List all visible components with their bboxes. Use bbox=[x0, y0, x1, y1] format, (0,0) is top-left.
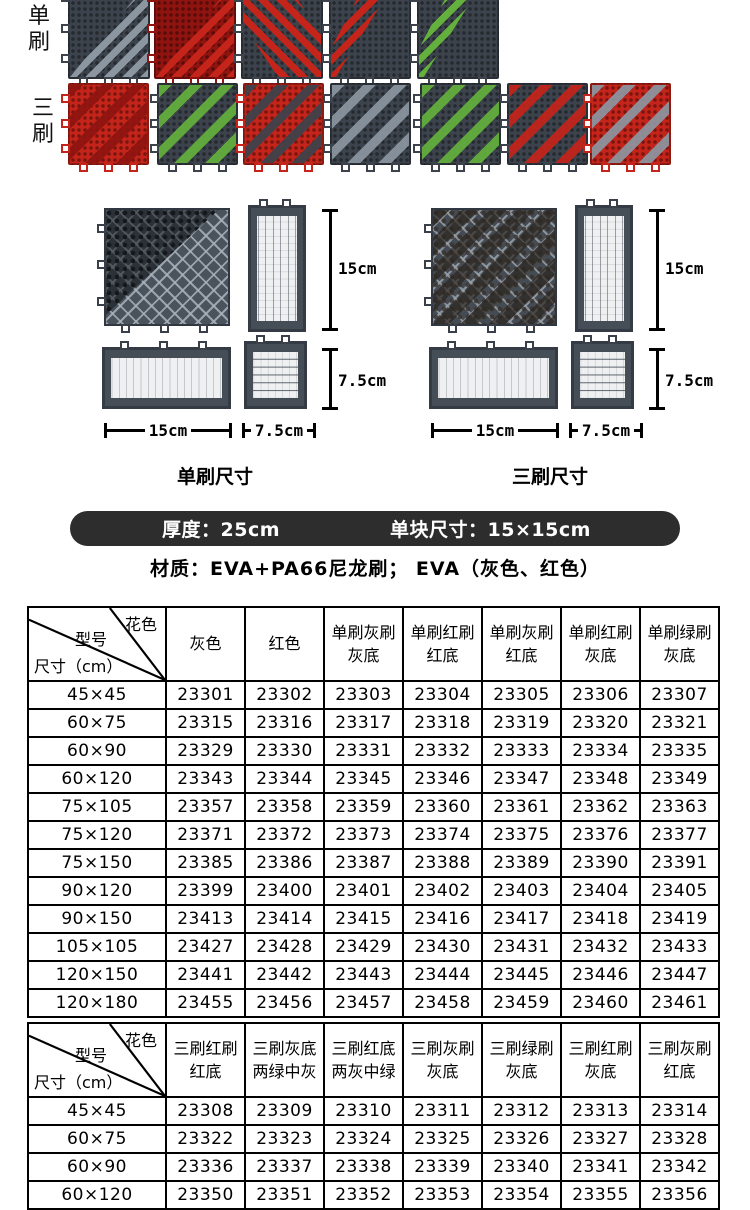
code-cell: 23353 bbox=[403, 1181, 482, 1209]
code-cell: 23348 bbox=[561, 765, 640, 793]
product-tile-red-brush-gray-base bbox=[329, 0, 411, 79]
code-cell: 23310 bbox=[324, 1097, 403, 1125]
code-cell: 23400 bbox=[245, 877, 324, 905]
table-row: 60×7523322233232332423325233262332723328 bbox=[28, 1125, 719, 1153]
product-tile-green-brush-gray-base bbox=[417, 0, 499, 79]
width-dimension-line: 15cm bbox=[104, 422, 232, 438]
height-dimension-line bbox=[649, 209, 665, 331]
table-row: 60×7523315233162331723318233192332023321 bbox=[28, 709, 719, 737]
height-small-dimension-line bbox=[322, 348, 338, 410]
code-cell: 23358 bbox=[245, 793, 324, 821]
code-cell: 23318 bbox=[403, 709, 482, 737]
size-cell: 75×150 bbox=[28, 849, 166, 877]
column-header: 三刷灰刷红底 bbox=[640, 1023, 719, 1097]
code-cell: 23361 bbox=[482, 793, 561, 821]
code-cell: 23327 bbox=[561, 1125, 640, 1153]
spec-banner: 厚度：25cm 单块尺寸：15×15cm bbox=[70, 511, 680, 546]
code-cell: 23427 bbox=[166, 933, 245, 961]
height-small-dimension-label: 7.5cm bbox=[664, 371, 714, 390]
table-row: 75×1202337123372233732337423375233762337… bbox=[28, 821, 719, 849]
code-cell: 23403 bbox=[482, 877, 561, 905]
product-tile-gray-brush-gray-base bbox=[68, 0, 150, 79]
size-cell: 90×150 bbox=[28, 905, 166, 933]
table-row: 60×9023329233302333123332233332333423335 bbox=[28, 737, 719, 765]
size-cell: 60×120 bbox=[28, 765, 166, 793]
code-cell: 23444 bbox=[403, 961, 482, 989]
code-cell: 23376 bbox=[561, 821, 640, 849]
code-cell: 23456 bbox=[245, 989, 324, 1017]
height-small-dimension-label: 7.5cm bbox=[337, 371, 387, 390]
code-cell: 23418 bbox=[561, 905, 640, 933]
tile-size-spec: 单块尺寸：15×15cm bbox=[390, 515, 591, 542]
table-row: 45×4523301233022330323304233052330623307 bbox=[28, 681, 719, 709]
code-cell: 23375 bbox=[482, 821, 561, 849]
code-cell: 23388 bbox=[403, 849, 482, 877]
code-cell: 23374 bbox=[403, 821, 482, 849]
column-header: 灰色 bbox=[166, 607, 245, 681]
code-cell: 23322 bbox=[166, 1125, 245, 1153]
code-cell: 23314 bbox=[640, 1097, 719, 1125]
code-cell: 23317 bbox=[324, 709, 403, 737]
height-dimension-label: 15cm bbox=[337, 259, 378, 278]
code-cell: 23316 bbox=[245, 709, 324, 737]
size-cell: 75×120 bbox=[28, 821, 166, 849]
code-cell: 23389 bbox=[482, 849, 561, 877]
code-cell: 23362 bbox=[561, 793, 640, 821]
code-cell: 23354 bbox=[482, 1181, 561, 1209]
code-cell: 23404 bbox=[561, 877, 640, 905]
column-header: 单刷绿刷灰底 bbox=[640, 607, 719, 681]
code-cell: 23417 bbox=[482, 905, 561, 933]
column-header: 三刷红刷灰底 bbox=[561, 1023, 640, 1097]
triple-brush-code-table: 花色型号尺寸（cm）三刷红刷红底三刷灰底两绿中灰三刷红底两灰中绿三刷灰刷灰底三刷… bbox=[27, 1022, 717, 1210]
code-cell: 23372 bbox=[245, 821, 324, 849]
code-cell: 23356 bbox=[640, 1181, 719, 1209]
code-cell: 23341 bbox=[561, 1153, 640, 1181]
code-cell: 23331 bbox=[324, 737, 403, 765]
code-cell: 23305 bbox=[482, 681, 561, 709]
size-cell: 60×90 bbox=[28, 737, 166, 765]
code-cell: 23311 bbox=[403, 1097, 482, 1125]
tile-7x15-image bbox=[248, 205, 306, 332]
product-tile-red-brush-gray-base bbox=[507, 83, 588, 165]
code-cell: 23387 bbox=[324, 849, 403, 877]
table-row: 60×1202334323344233452334623347233482334… bbox=[28, 765, 719, 793]
tile-15x7-image bbox=[102, 347, 231, 409]
code-cell: 23335 bbox=[640, 737, 719, 765]
column-header: 三刷绿刷灰底 bbox=[482, 1023, 561, 1097]
product-tile-red-brush-red-base bbox=[68, 83, 149, 165]
code-cell: 23373 bbox=[324, 821, 403, 849]
code-cell: 23445 bbox=[482, 961, 561, 989]
size-cell: 60×75 bbox=[28, 1125, 166, 1153]
code-cell: 23363 bbox=[640, 793, 719, 821]
code-cell: 23433 bbox=[640, 933, 719, 961]
height-dimension-line bbox=[322, 209, 338, 331]
code-cell: 23351 bbox=[245, 1181, 324, 1209]
code-cell: 23312 bbox=[482, 1097, 561, 1125]
code-cell: 23432 bbox=[561, 933, 640, 961]
table-row: 75×1052335723358233592336023361233622336… bbox=[28, 793, 719, 821]
table-row: 90×1502341323414234152341623417234182341… bbox=[28, 905, 719, 933]
column-header: 红色 bbox=[245, 607, 324, 681]
product-tile-green-brush-gray-base bbox=[157, 83, 238, 165]
code-cell: 23428 bbox=[245, 933, 324, 961]
product-tile-gray-brush-red-base bbox=[243, 83, 324, 165]
single-brush-code-table: 花色型号尺寸（cm）灰色红色单刷灰刷灰底单刷红刷红底单刷灰刷红底单刷红刷灰底单刷… bbox=[27, 606, 717, 1018]
code-cell: 23338 bbox=[324, 1153, 403, 1181]
column-header: 三刷灰底两绿中灰 bbox=[245, 1023, 324, 1097]
tile-15x15-image bbox=[431, 208, 557, 326]
size-cell: 45×45 bbox=[28, 681, 166, 709]
code-cell: 23429 bbox=[324, 933, 403, 961]
code-cell: 23315 bbox=[166, 709, 245, 737]
code-cell: 23328 bbox=[640, 1125, 719, 1153]
code-cell: 23390 bbox=[561, 849, 640, 877]
code-cell: 23329 bbox=[166, 737, 245, 765]
code-cell: 23324 bbox=[324, 1125, 403, 1153]
tile-7x15-image bbox=[575, 205, 633, 332]
product-tile-gray-brush-red-base-2 bbox=[590, 83, 671, 165]
size-cell: 120×150 bbox=[28, 961, 166, 989]
table-corner-header: 花色型号尺寸（cm） bbox=[28, 1023, 166, 1097]
width-small-dimension-line: 7.5cm bbox=[242, 422, 316, 438]
code-cell: 23377 bbox=[640, 821, 719, 849]
column-header: 三刷灰刷灰底 bbox=[403, 1023, 482, 1097]
tile-7x7-image bbox=[571, 341, 634, 409]
code-cell: 23320 bbox=[561, 709, 640, 737]
code-cell: 23346 bbox=[403, 765, 482, 793]
code-cell: 23457 bbox=[324, 989, 403, 1017]
column-header: 单刷灰刷灰底 bbox=[324, 607, 403, 681]
code-cell: 23415 bbox=[324, 905, 403, 933]
product-detail-page: { "colors": { "page_bg": "#ffffff", "til… bbox=[0, 0, 750, 1186]
code-cell: 23308 bbox=[166, 1097, 245, 1125]
size-cell: 60×75 bbox=[28, 709, 166, 737]
code-cell: 23430 bbox=[403, 933, 482, 961]
table-row: 45×4523308233092331023311233122331323314 bbox=[28, 1097, 719, 1125]
code-cell: 23461 bbox=[640, 989, 719, 1017]
code-cell: 23414 bbox=[245, 905, 324, 933]
code-cell: 23441 bbox=[166, 961, 245, 989]
code-cell: 23319 bbox=[482, 709, 561, 737]
code-cell: 23446 bbox=[561, 961, 640, 989]
code-cell: 23460 bbox=[561, 989, 640, 1017]
tile-7x7-image bbox=[244, 341, 307, 409]
size-cell: 105×105 bbox=[28, 933, 166, 961]
code-cell: 23413 bbox=[166, 905, 245, 933]
size-cell: 60×90 bbox=[28, 1153, 166, 1181]
table-row: 120×180234552345623457234582345923460234… bbox=[28, 989, 719, 1017]
code-cell: 23402 bbox=[403, 877, 482, 905]
table-row: 75×1502338523386233872338823389233902339… bbox=[28, 849, 719, 877]
code-cell: 23455 bbox=[166, 989, 245, 1017]
tile-15x7-image bbox=[429, 347, 558, 409]
tile-15x15-image bbox=[104, 208, 230, 326]
table-row: 90×1202339923400234012340223403234042340… bbox=[28, 877, 719, 905]
code-cell: 23405 bbox=[640, 877, 719, 905]
column-header: 单刷灰刷红底 bbox=[482, 607, 561, 681]
height-small-dimension-line bbox=[649, 348, 665, 410]
code-cell: 23349 bbox=[640, 765, 719, 793]
size-cell: 45×45 bbox=[28, 1097, 166, 1125]
code-cell: 23401 bbox=[324, 877, 403, 905]
material-line: 材质：EVA+PA66尼龙刷； EVA（灰色、红色） bbox=[0, 554, 750, 581]
code-cell: 23447 bbox=[640, 961, 719, 989]
code-cell: 23309 bbox=[245, 1097, 324, 1125]
product-tile-red-brush-gray-corner bbox=[241, 0, 323, 79]
code-cell: 23344 bbox=[245, 765, 324, 793]
code-cell: 23313 bbox=[561, 1097, 640, 1125]
code-cell: 23360 bbox=[403, 793, 482, 821]
column-header: 单刷红刷红底 bbox=[403, 607, 482, 681]
code-cell: 23371 bbox=[166, 821, 245, 849]
code-cell: 23301 bbox=[166, 681, 245, 709]
code-cell: 23337 bbox=[245, 1153, 324, 1181]
triple-brush-row-label: 三刷 bbox=[30, 96, 56, 148]
code-cell: 23345 bbox=[324, 765, 403, 793]
code-cell: 23304 bbox=[403, 681, 482, 709]
code-cell: 23325 bbox=[403, 1125, 482, 1153]
code-cell: 23355 bbox=[561, 1181, 640, 1209]
code-cell: 23352 bbox=[324, 1181, 403, 1209]
code-cell: 23339 bbox=[403, 1153, 482, 1181]
code-cell: 23321 bbox=[640, 709, 719, 737]
code-cell: 23306 bbox=[561, 681, 640, 709]
single-brush-dimension-diagram: 15cm 7.5cm 15cm 7.5cm bbox=[100, 195, 400, 445]
single-brush-row-label: 单刷 bbox=[26, 4, 52, 56]
code-cell: 23385 bbox=[166, 849, 245, 877]
table-row: 60×9023336233372333823339233402334123342 bbox=[28, 1153, 719, 1181]
code-cell: 23419 bbox=[640, 905, 719, 933]
product-photo-section: 单刷 三刷 bbox=[0, 0, 750, 190]
code-cell: 23416 bbox=[403, 905, 482, 933]
code-cell: 23334 bbox=[561, 737, 640, 765]
code-cell: 23391 bbox=[640, 849, 719, 877]
size-cell: 75×105 bbox=[28, 793, 166, 821]
product-tile-red-brush-red-base bbox=[154, 0, 236, 79]
code-cell: 23330 bbox=[245, 737, 324, 765]
column-header: 单刷红刷灰底 bbox=[561, 607, 640, 681]
code-cell: 23386 bbox=[245, 849, 324, 877]
code-cell: 23302 bbox=[245, 681, 324, 709]
code-cell: 23350 bbox=[166, 1181, 245, 1209]
code-cell: 23332 bbox=[403, 737, 482, 765]
product-tile-green-brush-gray-base-2 bbox=[420, 83, 501, 165]
code-cell: 23323 bbox=[245, 1125, 324, 1153]
product-tile-gray-brush-gray-base bbox=[330, 83, 411, 165]
code-cell: 23347 bbox=[482, 765, 561, 793]
code-cell: 23340 bbox=[482, 1153, 561, 1181]
single-brush-diagram-caption: 单刷尺寸 bbox=[130, 462, 300, 489]
code-cell: 23307 bbox=[640, 681, 719, 709]
code-cell: 23336 bbox=[166, 1153, 245, 1181]
code-cell: 23359 bbox=[324, 793, 403, 821]
code-cell: 23343 bbox=[166, 765, 245, 793]
column-header: 三刷红底两灰中绿 bbox=[324, 1023, 403, 1097]
thickness-spec: 厚度：25cm bbox=[162, 515, 280, 542]
code-cell: 23443 bbox=[324, 961, 403, 989]
code-cell: 23303 bbox=[324, 681, 403, 709]
code-cell: 23459 bbox=[482, 989, 561, 1017]
width-small-dimension-line: 7.5cm bbox=[569, 422, 643, 438]
height-dimension-label: 15cm bbox=[664, 259, 705, 278]
table-corner-header: 花色型号尺寸（cm） bbox=[28, 607, 166, 681]
width-dimension-line: 15cm bbox=[431, 422, 559, 438]
table-row: 105×105234272342823429234302343123432234… bbox=[28, 933, 719, 961]
code-cell: 23333 bbox=[482, 737, 561, 765]
column-header: 三刷红刷红底 bbox=[166, 1023, 245, 1097]
code-cell: 23458 bbox=[403, 989, 482, 1017]
size-cell: 120×180 bbox=[28, 989, 166, 1017]
table-row: 60×1202335023351233522335323354233552335… bbox=[28, 1181, 719, 1209]
table-row: 120×150234412344223443234442344523446234… bbox=[28, 961, 719, 989]
triple-brush-dimension-diagram: 15cm 7.5cm 15cm 7.5cm bbox=[427, 195, 727, 445]
code-cell: 23399 bbox=[166, 877, 245, 905]
code-cell: 23342 bbox=[640, 1153, 719, 1181]
size-cell: 60×120 bbox=[28, 1181, 166, 1209]
code-cell: 23326 bbox=[482, 1125, 561, 1153]
code-cell: 23442 bbox=[245, 961, 324, 989]
code-cell: 23431 bbox=[482, 933, 561, 961]
size-cell: 90×120 bbox=[28, 877, 166, 905]
triple-brush-diagram-caption: 三刷尺寸 bbox=[465, 462, 635, 489]
code-cell: 23357 bbox=[166, 793, 245, 821]
